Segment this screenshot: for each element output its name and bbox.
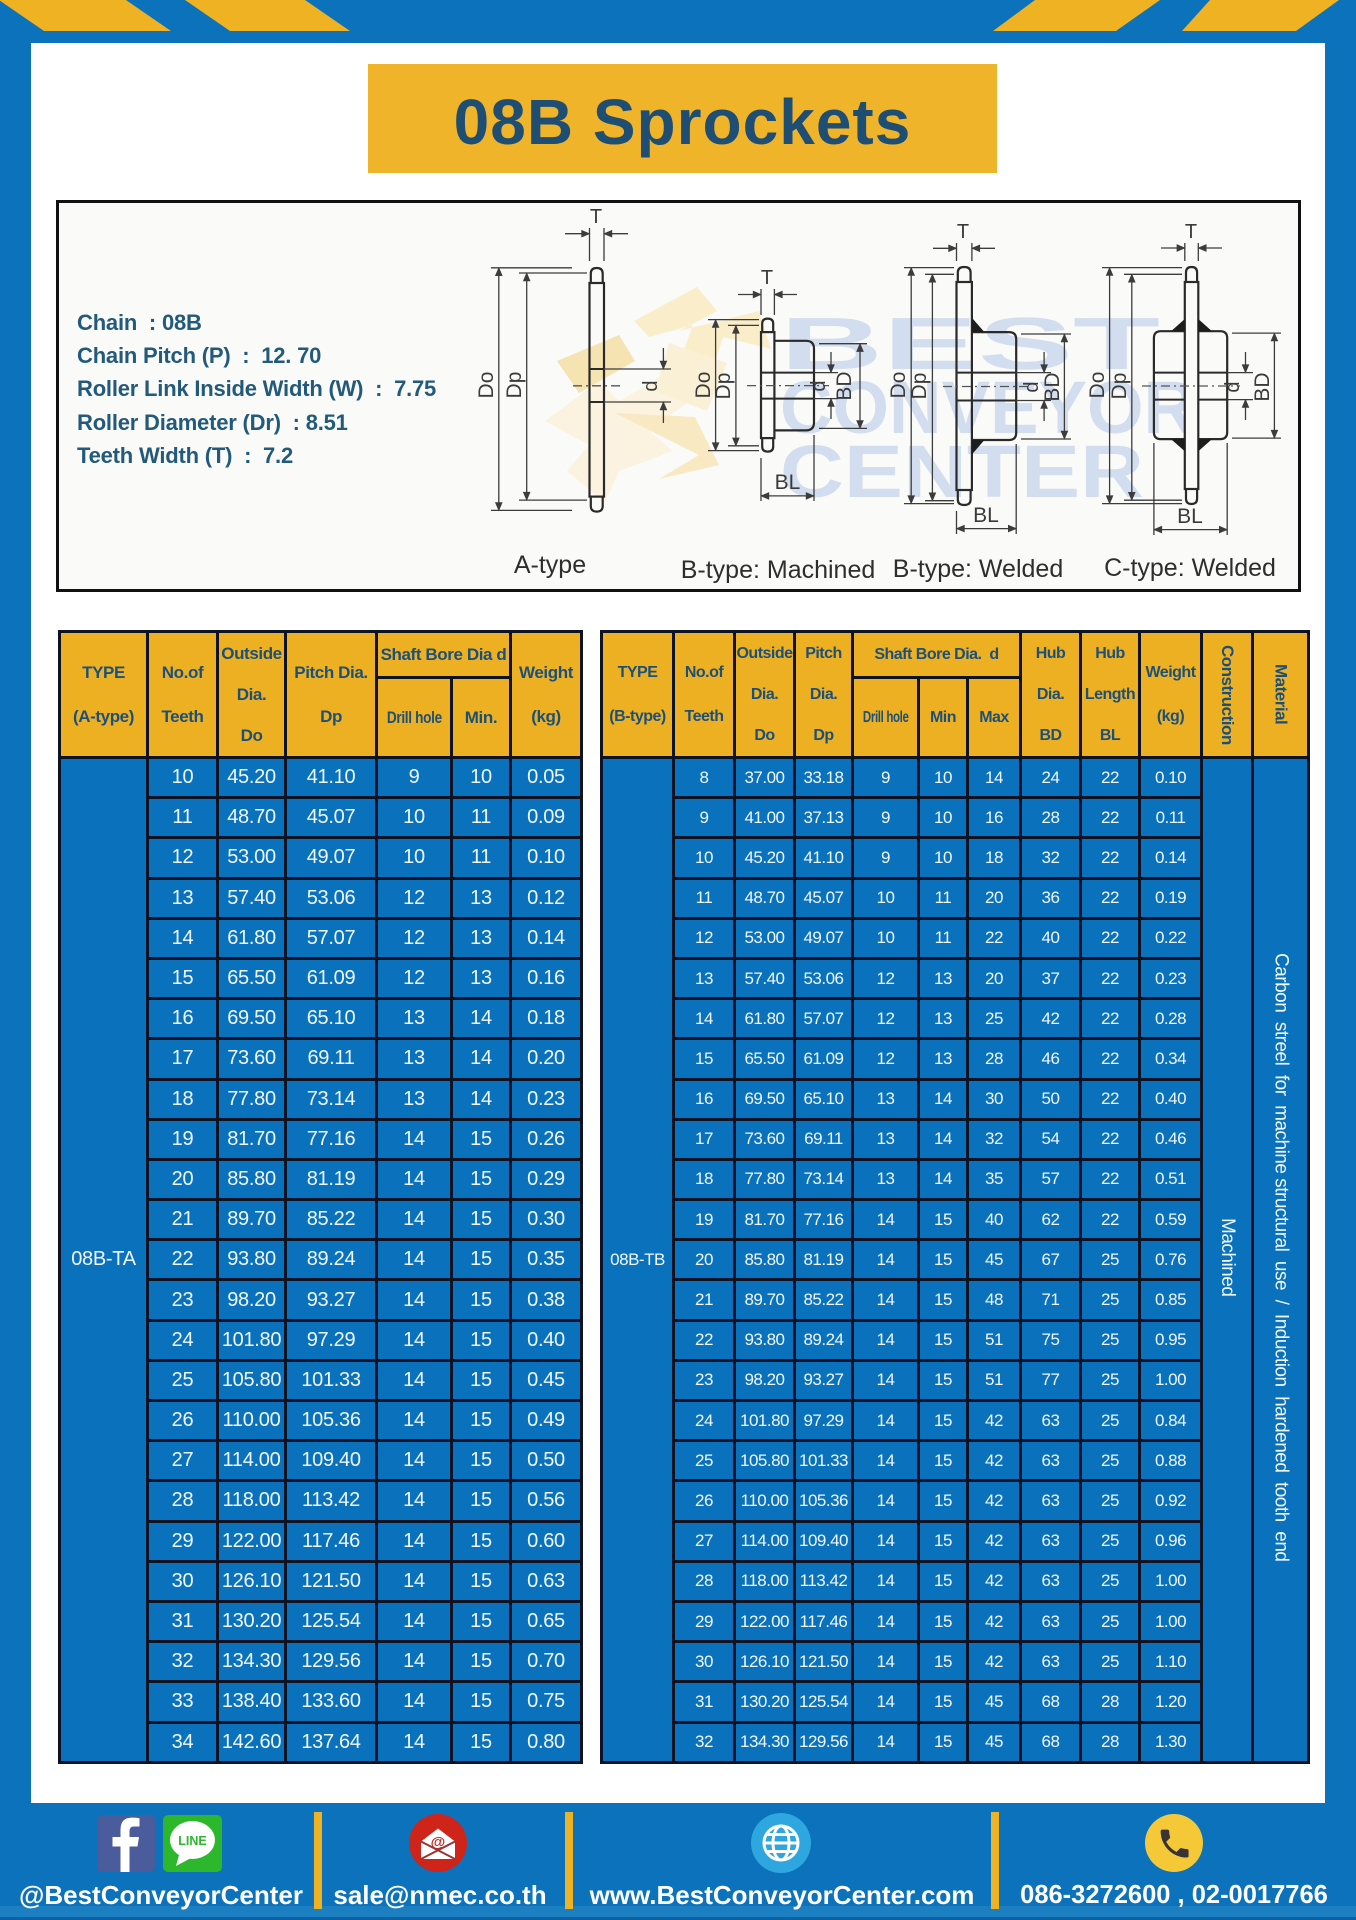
- svg-text:d: d: [1021, 381, 1043, 392]
- svg-text:Dp: Dp: [503, 372, 526, 399]
- svg-text:T: T: [590, 206, 602, 228]
- svg-text:Do: Do: [887, 372, 910, 399]
- svg-text:B-type: Welded: B-type: Welded: [893, 555, 1063, 583]
- svg-text:CENTER: CENTER: [780, 430, 1144, 513]
- svg-text:BL: BL: [973, 504, 999, 527]
- svg-text:T: T: [1185, 221, 1197, 243]
- svg-text:C-type: Welded: C-type: Welded: [1104, 554, 1276, 582]
- svg-text:BL: BL: [775, 471, 801, 494]
- svg-text:Do: Do: [1086, 372, 1109, 399]
- svg-text:BD: BD: [1251, 372, 1274, 401]
- svg-text:LINE: LINE: [178, 1834, 206, 1848]
- svg-text:Do: Do: [475, 372, 498, 399]
- svg-text:B-type: Machined: B-type: Machined: [681, 556, 876, 584]
- svg-text:BL: BL: [1177, 505, 1203, 528]
- svg-text:T: T: [957, 221, 969, 243]
- svg-text:Dp: Dp: [712, 373, 735, 400]
- svg-text:d: d: [808, 380, 830, 391]
- svg-text:A-type: A-type: [514, 551, 586, 579]
- svg-text:Dp: Dp: [1108, 373, 1131, 400]
- svg-text:d: d: [1222, 381, 1244, 392]
- svg-text:d: d: [640, 380, 662, 391]
- svg-text:Dp: Dp: [908, 373, 931, 400]
- svg-text:BD: BD: [833, 371, 856, 400]
- svg-text:T: T: [761, 267, 773, 289]
- svg-text:BD: BD: [1041, 372, 1064, 401]
